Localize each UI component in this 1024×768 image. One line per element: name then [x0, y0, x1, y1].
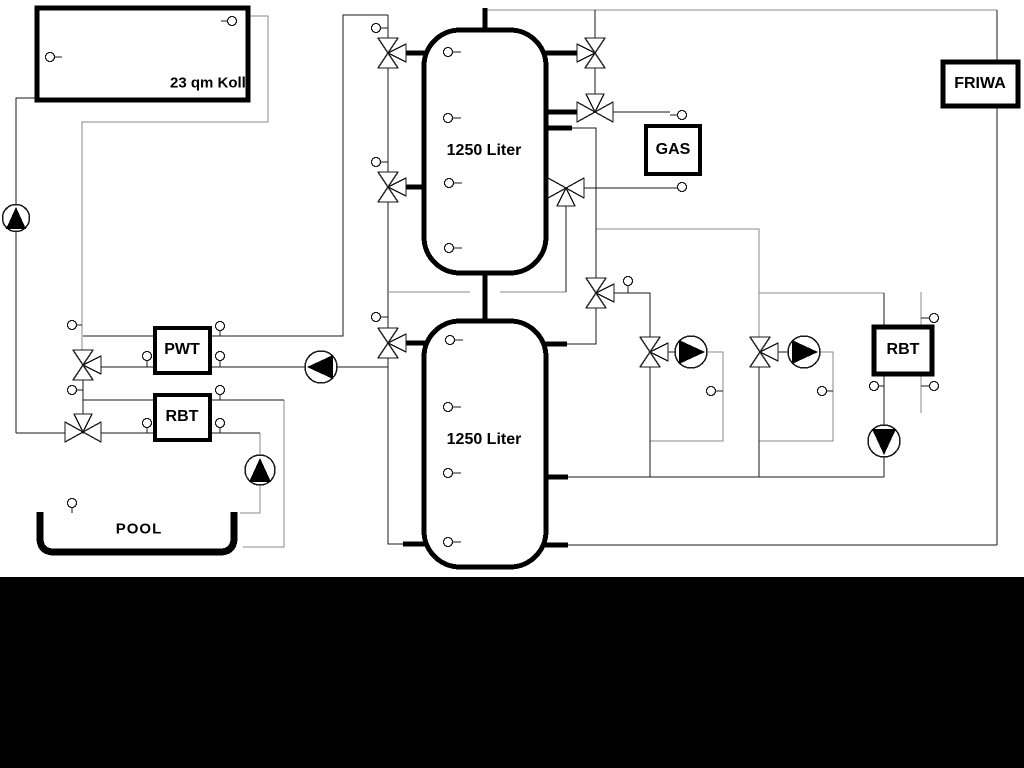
- valve-gas-flow-icon: [577, 94, 613, 122]
- sensor-icon: [143, 352, 152, 368]
- pipe-v8-to-circuit1: [614, 293, 650, 338]
- sensor-icon: [372, 24, 389, 33]
- pump-solar-icon: [3, 205, 30, 232]
- pump-circuit1-icon: [675, 336, 707, 368]
- pipe-gas-top: [613, 112, 677, 115]
- valve-pool-rbt-icon: [65, 414, 101, 442]
- pwt-label: PWT: [164, 341, 200, 359]
- pipe-branch-right: [596, 229, 759, 340]
- sensor-icon: [216, 352, 225, 368]
- valve-distribution-icon: [586, 278, 614, 308]
- letterbox-band: [0, 577, 1024, 768]
- valve-solar-pwt-icon: [73, 350, 101, 380]
- sensor-icon: [870, 382, 885, 391]
- pump-pwt-icon: [305, 351, 337, 383]
- pump-circuit2-icon: [788, 336, 820, 368]
- valve-gas-return-icon: [548, 178, 584, 206]
- sensor-icon: [707, 387, 724, 396]
- friwa-label: FRIWA: [954, 75, 1006, 93]
- rbt-left-label: RBT: [166, 408, 199, 426]
- pipe-tank1-mid-out: [571, 128, 596, 278]
- tank2-label: 1250 Liter: [447, 431, 522, 449]
- gas-port-icon: [678, 111, 687, 120]
- sensor-icon: [68, 321, 83, 330]
- valve-tank1-left-bottom-icon: [378, 172, 406, 202]
- schematic-canvas: 23 qm Kolli 1250 Liter 1250 Liter PWT RB…: [0, 0, 1024, 768]
- sensor-icon: [216, 322, 225, 337]
- rbt-right-label: RBT: [887, 341, 920, 359]
- sensor-icon: [143, 419, 152, 434]
- valve-circuit2-icon: [750, 337, 778, 367]
- valve-tank1-right-top-icon: [577, 38, 605, 68]
- sensor-icon: [216, 419, 225, 434]
- valve-circuit1-icon: [640, 337, 668, 367]
- pump-rbt-right-icon: [868, 425, 900, 457]
- valve-tank1-left-top-icon: [378, 38, 406, 68]
- sensor-icon: [624, 277, 633, 294]
- pipe-v8-down: [567, 308, 596, 344]
- pipe-tank-left-main: [388, 15, 405, 544]
- sensor-icon: [921, 382, 939, 391]
- valve-tank2-left-icon: [378, 328, 406, 358]
- pipe-collector-supply: [16, 98, 37, 433]
- sensor-icon: [68, 386, 84, 395]
- sensor-icon: [818, 387, 834, 396]
- sensor-icon: [68, 499, 77, 514]
- sensor-icon: [216, 386, 225, 401]
- collector-label: 23 qm Kolli: [170, 75, 250, 92]
- component-boxes: [37, 8, 1018, 567]
- gas-port-icon: [678, 183, 687, 192]
- sensor-icon: [921, 314, 939, 323]
- pool-label: POOL: [116, 521, 163, 538]
- pump-pool-icon: [245, 455, 275, 485]
- sensor-icon: [372, 313, 389, 322]
- gas-label: GAS: [656, 141, 691, 159]
- sensor-icon: [372, 158, 389, 167]
- tank1-label: 1250 Liter: [447, 142, 522, 160]
